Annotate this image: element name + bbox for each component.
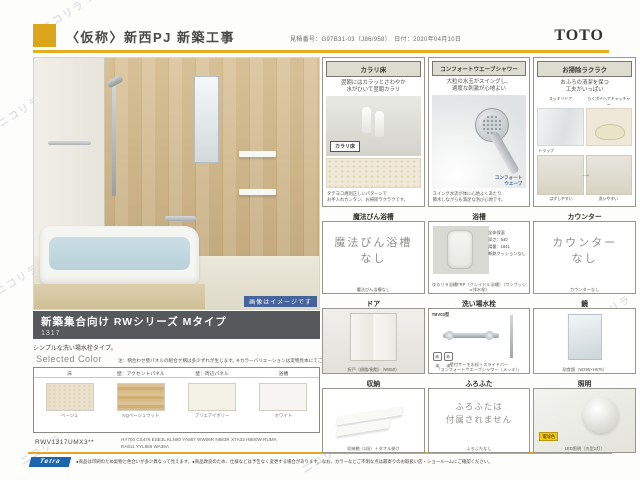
none-text: ふろふたは 付属されません — [429, 400, 530, 426]
grab-bar — [48, 141, 91, 145]
cell-caption: 魔法びん浴槽なし — [325, 287, 422, 292]
feature-copy: 大粒の水玉がスイングし、 適度な刺激が心地よい — [429, 79, 530, 94]
cell-caption: 壁付サーモ水栓＋スライドバー 「コンフォートウエーブシャワー（メッキ）」 — [431, 362, 528, 372]
feature-faucet: 洗い場水栓 TBV03型 節湯 節湯 壁付サーモ水栓＋スライドバー 「コンフォー… — [428, 297, 531, 374]
feature-footnote: タテヨコ規則正しいパターンで お手入れカンタン、お掃除ラクラクです。 — [327, 191, 420, 203]
swatch-name: プリエアイボリー — [177, 413, 248, 419]
series-title-bar: 新築集合向け RWシリーズ Mタイプ 1317 — [33, 311, 320, 339]
feature-comfort-wave-shower: コンフォートウエーブシャワー 大粒の水玉がスイングし、 適度な刺激が心地よい コ… — [428, 57, 531, 207]
door-photo — [350, 313, 396, 362]
series-tagline: シンプルな洗い場水栓タイプ。 — [33, 343, 117, 352]
header-rule — [33, 50, 609, 53]
cell-box: 電球色 LED照明（丸型1灯） — [533, 388, 636, 453]
feature-footnote: スイング水流が体に心地よくあたり、 節水しながらも満足な浴び心地です。 — [433, 191, 526, 203]
karari-floor-badge: カラリ床 — [330, 141, 360, 152]
swatch-surround: プリエアイボリー — [177, 378, 248, 432]
feature-header: カラリ床 — [326, 61, 421, 77]
shelf — [239, 151, 276, 157]
water-saving-icons: 節湯 節湯 — [433, 352, 453, 361]
cell-caption: ふろふたなし — [431, 446, 528, 451]
swatch-accent: NQベージュウッド — [105, 378, 176, 432]
bathtub-top-photo — [433, 226, 489, 274]
cell-title: ドア — [322, 297, 425, 308]
feature-copy: おふろの清潔を保つ 工夫がいっぱい — [534, 80, 635, 95]
feature-mirror: 鏡 耐食鏡（W295×H675） — [533, 297, 636, 374]
shelf — [239, 189, 276, 195]
shower-slide-bar — [112, 86, 116, 196]
column-accent-panel: 壁：アクセントパネル — [105, 368, 176, 377]
feature-header: コンフォートウエーブシャワー — [432, 61, 527, 76]
cell-box: カウンター なし カウンターなし — [533, 221, 636, 294]
floor-texture-sample — [326, 158, 421, 188]
feature-header: お掃除ラクラク — [537, 61, 632, 77]
color-table-header: 床 壁：アクセントパネル 壁：周辺パネル 浴槽 — [34, 368, 319, 378]
cell-box: TBV03型 節湯 節湯 壁付サーモ水栓＋スライドバー 「コンフォートウエーブシ… — [428, 308, 531, 374]
surround-swatch — [188, 383, 236, 411]
trap-caption: 洗いやすい — [585, 196, 632, 202]
hair-catcher-photo — [586, 108, 632, 146]
swatch-bathtub: ホワイト — [248, 378, 319, 432]
mirror-photo — [568, 314, 602, 360]
feature-counter: カウンター カウンター なし カウンターなし — [533, 210, 636, 294]
column-surround-panel: 壁：周辺パネル — [177, 368, 248, 377]
none-text: 魔法びん浴槽 なし — [323, 235, 424, 268]
feature-easy-cleaning: お掃除ラクラク おふろの清潔を保つ 工夫がいっぱい スッキリドア らくポイヘアキ… — [533, 57, 636, 207]
model-code: RWV1317UMX3** — [35, 439, 94, 446]
comfort-wave-logo: コンフォート ウエーブ — [495, 175, 522, 186]
eco-icon: 節湯 — [444, 352, 453, 361]
cell-title: 浴槽 — [428, 210, 531, 221]
part-codes: HY700 CS476 ESE3L KLN80 YA867 WW06R N883… — [121, 436, 317, 451]
feature-storage: 収納 収納棚（1段）＋タオル掛け — [322, 377, 425, 453]
tub-apron — [34, 284, 205, 309]
cell-title: 魔法びん浴槽 — [322, 210, 425, 221]
hair-catcher-label: らくポイヘアキャッチャー — [586, 96, 632, 108]
cell-box: ふろふたは 付属されません ふろふたなし — [428, 388, 531, 453]
leg-shape — [375, 111, 384, 137]
quote-info: 見積番号：G97B31-03（J86/958） 日付：2020年04月10日 — [290, 34, 461, 43]
bathtub-specs: 全体保温 深さ：540 湯量：184L 断熱クッションなし — [488, 229, 526, 258]
door-label: スッキリドア — [537, 96, 583, 108]
cell-box: 耐食鏡（W295×H675） — [533, 308, 636, 374]
brand-accent-square — [33, 24, 56, 47]
cell-box: 収納棚（1段）＋タオル掛け — [322, 388, 425, 453]
bathroom-photo: 画像はイメージです — [33, 57, 320, 310]
clean-door-photo — [537, 108, 583, 146]
page-title: 〈仮称〉新西PJ 新築工事 — [66, 27, 235, 46]
feature-door: ドア 折戸（樹脂/樹脂）（W650） — [322, 297, 425, 374]
cell-title: 鏡 — [533, 297, 636, 308]
cell-title: 収納 — [322, 377, 425, 388]
trap-captions: はずしやすい 洗いやすい — [537, 196, 632, 202]
color-swatch-row: ベージュ NQベージュウッド プリエアイボリー ホワイト — [34, 378, 319, 432]
footer-logo: Tetra — [29, 457, 71, 467]
storage-photo — [326, 392, 421, 442]
feature-light: 照明 電球色 LED照明（丸型1灯） — [533, 377, 636, 453]
faucet-knob — [445, 331, 454, 340]
swatch-name: ホワイト — [248, 413, 319, 419]
arrow-icon: → — [581, 169, 591, 180]
trap-caption: はずしやすい — [537, 196, 584, 202]
bath-water — [49, 237, 189, 270]
cleaning-labels: スッキリドア らくポイヘアキャッチャー — [537, 96, 632, 108]
footer-disclaimer: ●商品は印刷のため実物と色合いが多少異なって見えます。●商品改良のため、仕様など… — [76, 459, 610, 465]
cell-box: 魔法びん浴槽 なし 魔法びん浴槽なし — [322, 221, 425, 294]
cell-box: 折戸（樹脂/樹脂）（W650） — [322, 308, 425, 374]
accent-swatch — [117, 383, 165, 411]
cell-caption: LED照明（丸型1灯） — [536, 446, 633, 451]
faucet-spout — [165, 216, 196, 221]
cell-caption: 折戸（樹脂/樹脂）（W650） — [325, 367, 422, 372]
cell-caption: ゆるリラ浴槽FRP（クレイドル浴槽）（ワンプッシュ排水栓） — [431, 282, 528, 292]
cell-title: 照明 — [533, 377, 636, 388]
selected-color-table: 床 壁：アクセントパネル 壁：周辺パネル 浴槽 ベージュ NQベージュウッド プ… — [33, 367, 320, 433]
bathtub-swatch — [259, 383, 307, 411]
toto-logo: TOTO — [554, 27, 604, 45]
cell-box: 全体保温 深さ：540 湯量：184L 断熱クッションなし ゆるリラ浴槽FRP（… — [428, 221, 531, 294]
slide-bar — [510, 315, 513, 357]
cell-title: ふろふた — [428, 377, 531, 388]
feature-mahoubin: 魔法びん浴槽 魔法びん浴槽 なし 魔法びん浴槽なし — [322, 210, 425, 294]
feature-bathtub: 浴槽 全体保温 深さ：540 湯量：184L 断熱クッションなし ゆるリラ浴槽F… — [428, 210, 531, 294]
image-note-badge: 画像はイメージです — [244, 296, 317, 307]
bathtub-shape — [447, 230, 473, 270]
none-text: カウンター なし — [534, 235, 635, 268]
column-bathtub: 浴槽 — [248, 368, 319, 377]
trap-label: トラップ — [538, 148, 631, 154]
shower-head-photo: コンフォート ウエーブ — [432, 95, 527, 189]
series-title: 新築集合向け RWシリーズ Mタイプ — [41, 314, 312, 329]
swatch-floor: ベージュ — [34, 378, 105, 432]
cell-title: カウンター — [533, 210, 636, 221]
wall-mirror — [194, 76, 220, 164]
feature-lid: ふろふた ふろふたは 付属されません ふろふたなし — [428, 377, 531, 453]
trap-photos: → — [537, 155, 632, 195]
cell-caption: 収納棚（1段）＋タオル掛け — [325, 446, 422, 451]
cell-title: 洗い場水栓 — [428, 297, 531, 308]
trap-photo-before — [537, 155, 583, 195]
catalog-sheet: ニコリラ→ ニコリラ→ ニコリラ→ ニコリラ→ ニコリラ→ ニコリラ→ 〈仮称〉… — [0, 0, 640, 480]
shower-handle — [489, 131, 520, 175]
feet-on-floor-photo: カラリ床 — [326, 96, 421, 157]
swatch-name: NQベージュウッド — [105, 413, 176, 419]
faucet-model: TBV03型 — [432, 312, 450, 318]
swatch-name: ベージュ — [34, 413, 105, 419]
leg-shape — [362, 107, 371, 133]
part-codes-line1: HY700 CS476 ESE3L KLN80 YA867 WW06R N883… — [121, 436, 317, 443]
cleaning-photos — [537, 108, 632, 146]
feature-karari-floor: カラリ床 翌朝にはカラッとさわやか 水がひいて翌朝カラリ カラリ床 タテヨコ規則… — [322, 57, 425, 207]
feature-grid: カラリ床 翌朝にはカラッとさわやか 水がひいて翌朝カラリ カラリ床 タテヨコ規則… — [322, 57, 636, 453]
selected-color-label: Selected Color — [36, 354, 102, 364]
part-codes-line2: RA611 YYL986 WA39A — [121, 443, 317, 450]
cell-caption: カウンターなし — [536, 287, 633, 292]
light-dome-photo — [583, 397, 619, 433]
bathtub — [40, 226, 200, 284]
floor-swatch — [46, 383, 94, 411]
cell-caption: 耐食鏡（W295×H675） — [536, 367, 633, 372]
column-floor: 床 — [34, 368, 105, 377]
trap-photo-after — [586, 155, 632, 195]
feature-copy: 翌朝にはカラッとさわやか 水がひいて翌朝カラリ — [323, 80, 424, 95]
faucet-knob — [485, 331, 494, 340]
eco-icon: 節湯 — [433, 352, 442, 361]
bulb-color-badge: 電球色 — [539, 432, 558, 441]
selected-color-note-left: 注：柄合わせ壁パネルの組合せ柄は多少ずれが生じます。 — [118, 358, 237, 364]
series-size: 1317 — [41, 330, 312, 337]
